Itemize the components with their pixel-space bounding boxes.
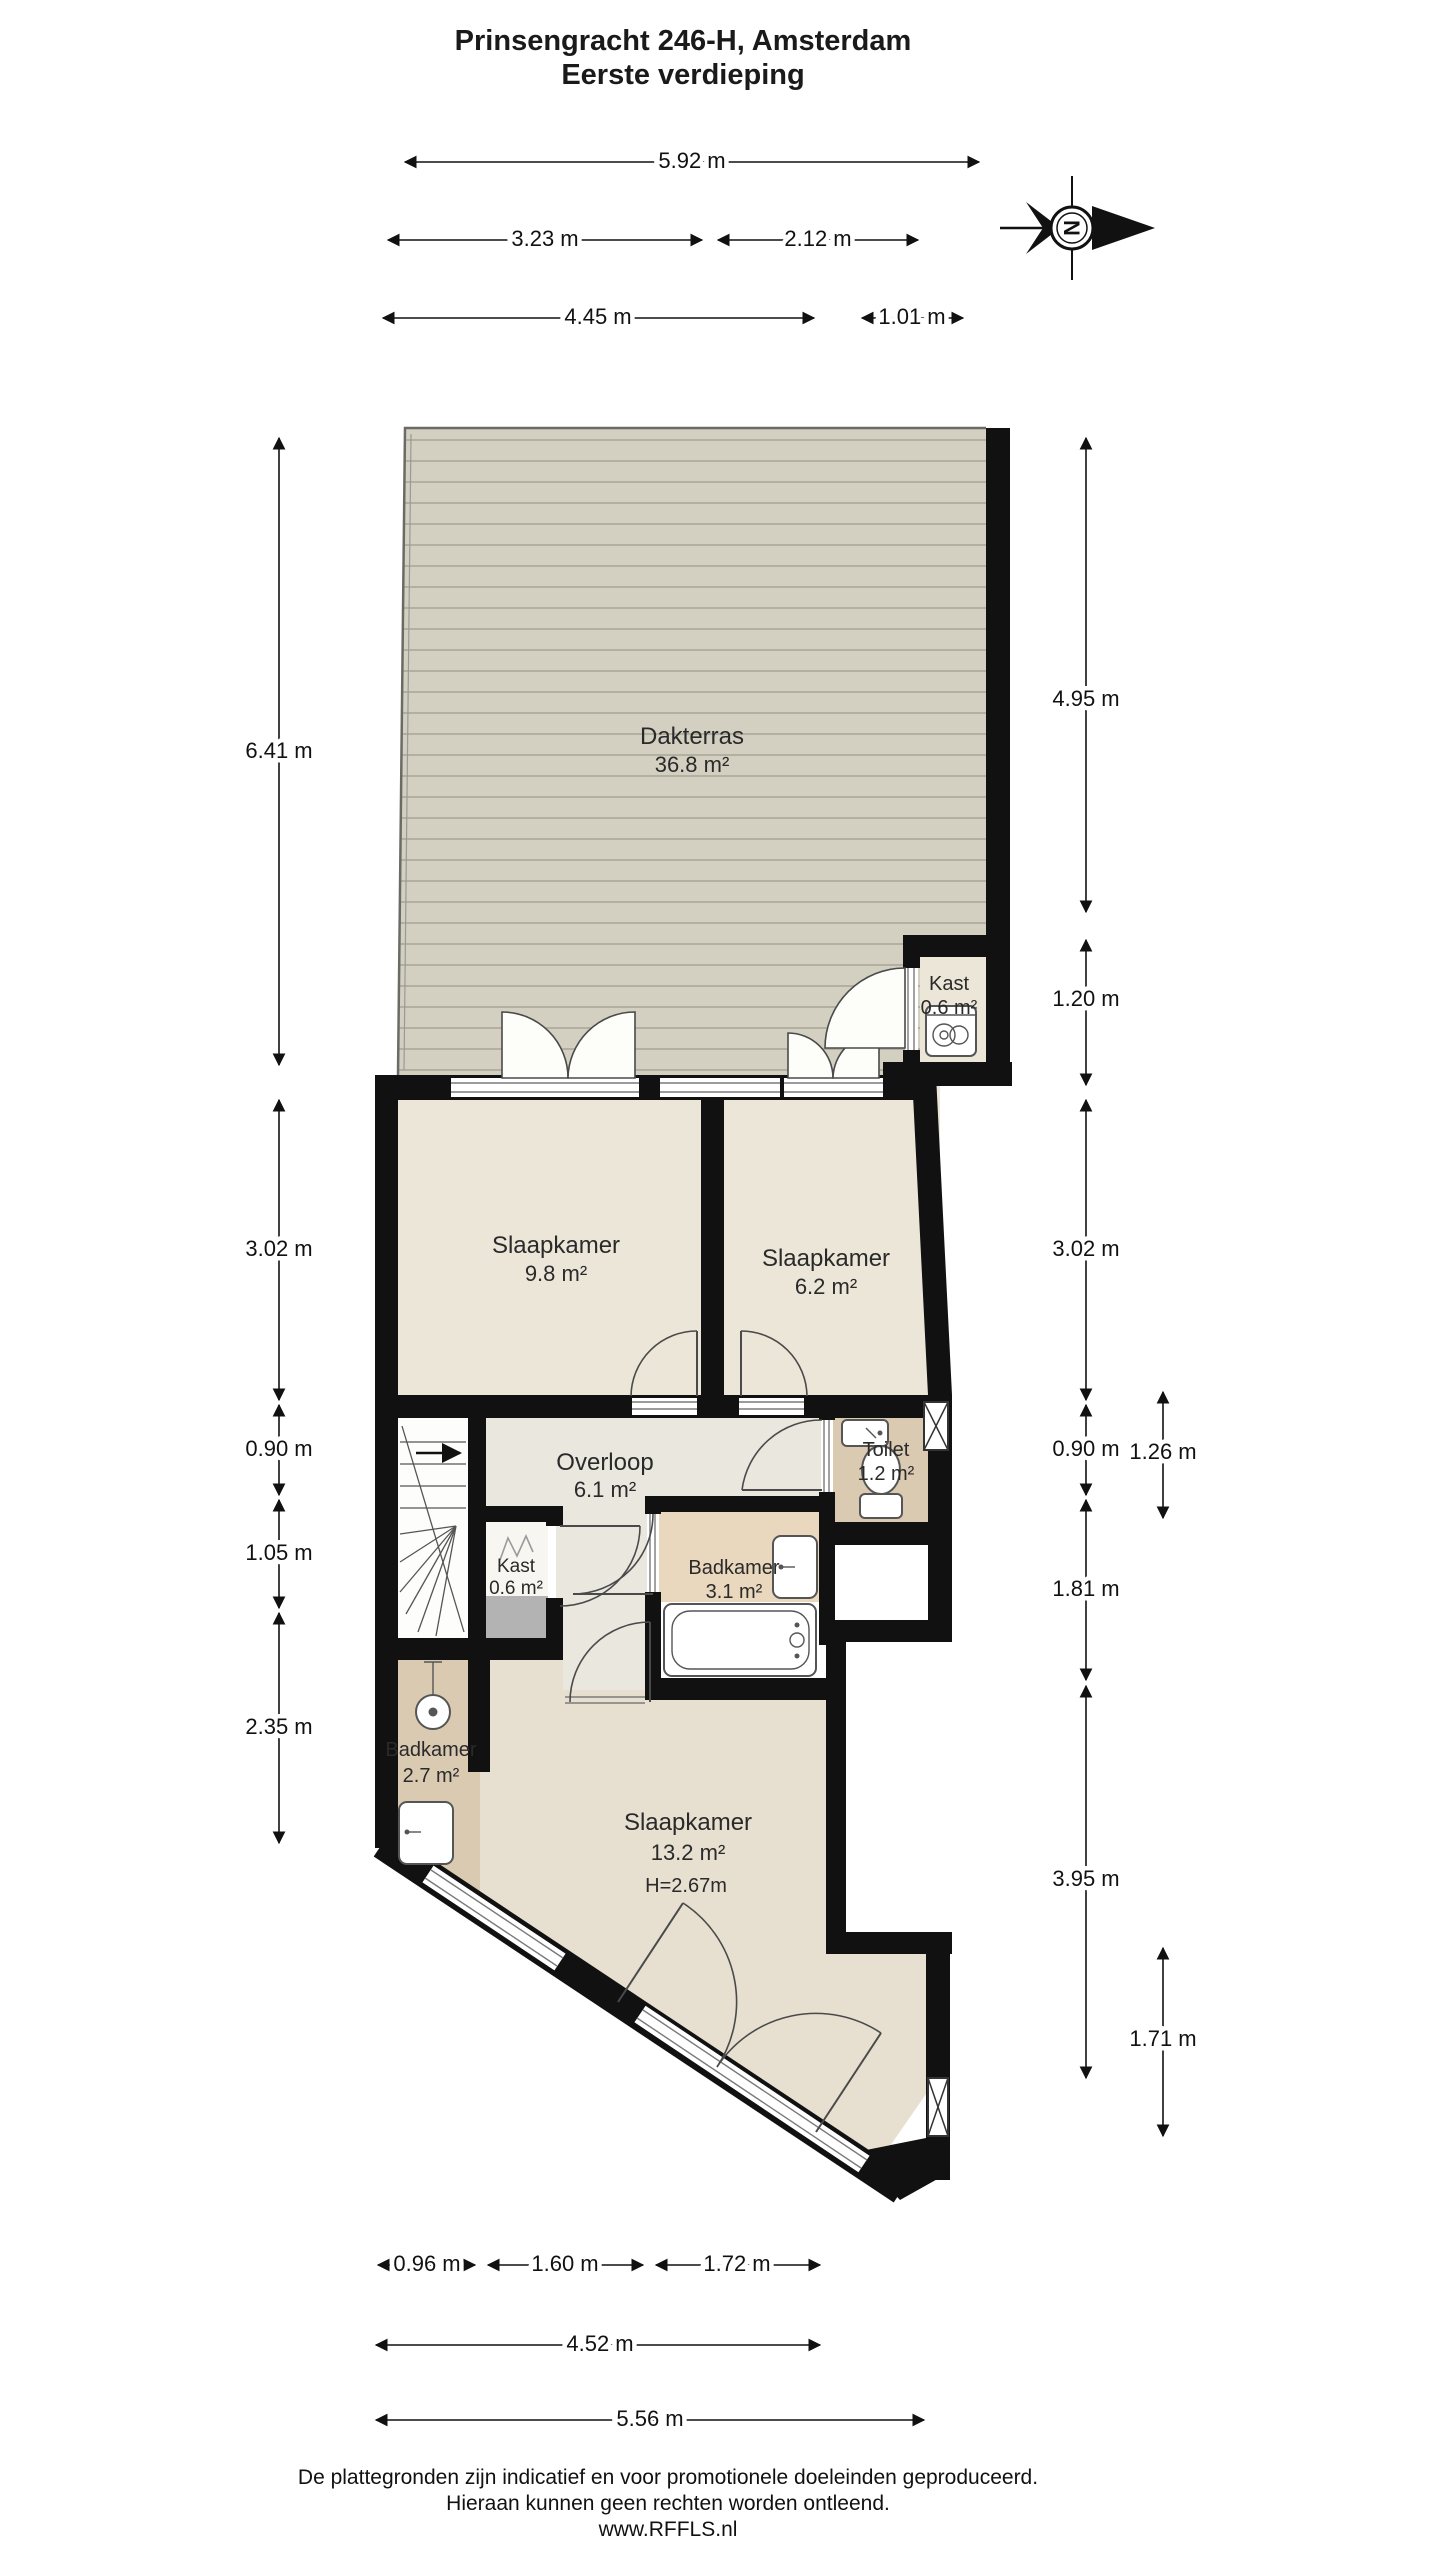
footer-line2: Hieraan kunnen geen rechten worden ontle…	[446, 2492, 890, 2515]
dim-top-4: 4.45 m	[564, 304, 631, 329]
dim-right-4: 0.90 m	[1052, 1436, 1119, 1461]
label-dakterras: Dakterras	[640, 723, 744, 750]
dim-top-1: 5.92 m	[658, 148, 725, 173]
bathroom2-sink-icon	[399, 1802, 453, 1864]
dim-right-6: 1.81 m	[1052, 1576, 1119, 1601]
label-kast-midden-area: 0.6 m²	[489, 1578, 543, 1599]
label-kast-midden: Kast	[497, 1556, 536, 1577]
north-arrow-icon: N	[1000, 176, 1155, 280]
dim-right-7: 3.95 m	[1052, 1866, 1119, 1891]
dim-bottom-1: 0.96 m	[393, 2251, 460, 2276]
bathtub-icon	[664, 1604, 816, 1676]
dim-left-1: 6.41 m	[245, 738, 312, 763]
label-badkamer1-area: 3.1 m²	[706, 1581, 763, 1603]
label-slaapkamer1: Slaapkamer	[492, 1232, 620, 1259]
dim-left-3: 0.90 m	[245, 1436, 312, 1461]
label-slaapkamer3-height: H=2.67m	[645, 1875, 727, 1897]
page-title-floor: Eerste verdieping	[561, 59, 804, 91]
dim-right-8: 1.71 m	[1129, 2026, 1196, 2051]
room-slaapkamer3-floor	[480, 1660, 944, 2172]
label-toilet: Toilet	[863, 1439, 910, 1461]
footer-website: www.RFFLS.nl	[598, 2518, 738, 2541]
label-kast-boven: Kast	[929, 973, 969, 995]
dim-left-5: 2.35 m	[245, 1714, 312, 1739]
compass-letter: N	[1059, 220, 1084, 236]
dim-bottom-4: 4.52 m	[566, 2331, 633, 2356]
floorplan-canvas: Prinsengracht 246-H, Amsterdam Eerste ve…	[0, 0, 1440, 2560]
footer-line1: De plattegronden zijn indicatief en voor…	[298, 2466, 1038, 2489]
dim-right-5: 1.26 m	[1129, 1439, 1196, 1464]
page-title-address: Prinsengracht 246-H, Amsterdam	[455, 25, 912, 57]
label-overloop: Overloop	[556, 1449, 653, 1476]
label-overloop-area: 6.1 m²	[574, 1477, 636, 1502]
dim-bottom-3: 1.72 m	[703, 2251, 770, 2276]
kast-midden-gray	[484, 1596, 548, 1642]
dim-left-2: 3.02 m	[245, 1236, 312, 1261]
dim-right-2: 1.20 m	[1052, 986, 1119, 1011]
label-badkamer2: Badkamer	[385, 1739, 476, 1761]
dim-right-3: 3.02 m	[1052, 1236, 1119, 1261]
footer-disclaimer: De plattegronden zijn indicatief en voor…	[298, 2466, 1038, 2541]
dim-bottom-2: 1.60 m	[531, 2251, 598, 2276]
dim-right-1: 4.95 m	[1052, 686, 1119, 711]
label-badkamer2-area: 2.7 m²	[403, 1765, 460, 1787]
void-room	[827, 1540, 945, 1624]
dim-bottom-5: 5.56 m	[616, 2406, 683, 2431]
label-kast-boven-area: 0.6 m²	[921, 997, 978, 1019]
label-toilet-area: 1.2 m²	[858, 1463, 915, 1485]
dim-top-5: 1.01 m	[878, 304, 945, 329]
label-dakterras-area: 36.8 m²	[655, 752, 730, 777]
floorplan-page: Prinsengracht 246-H, Amsterdam Eerste ve…	[0, 0, 1440, 2560]
dim-top-3: 2.12 m	[784, 226, 851, 251]
label-slaapkamer1-area: 9.8 m²	[525, 1261, 587, 1286]
label-badkamer1: Badkamer	[688, 1557, 779, 1579]
label-slaapkamer2-area: 6.2 m²	[795, 1274, 857, 1299]
label-slaapkamer3-area: 13.2 m²	[651, 1840, 726, 1865]
label-slaapkamer3: Slaapkamer	[624, 1809, 752, 1836]
dim-top-2: 3.23 m	[511, 226, 578, 251]
bathroom1-sink-icon	[773, 1536, 817, 1598]
dim-left-4: 1.05 m	[245, 1540, 312, 1565]
label-slaapkamer2: Slaapkamer	[762, 1245, 890, 1272]
